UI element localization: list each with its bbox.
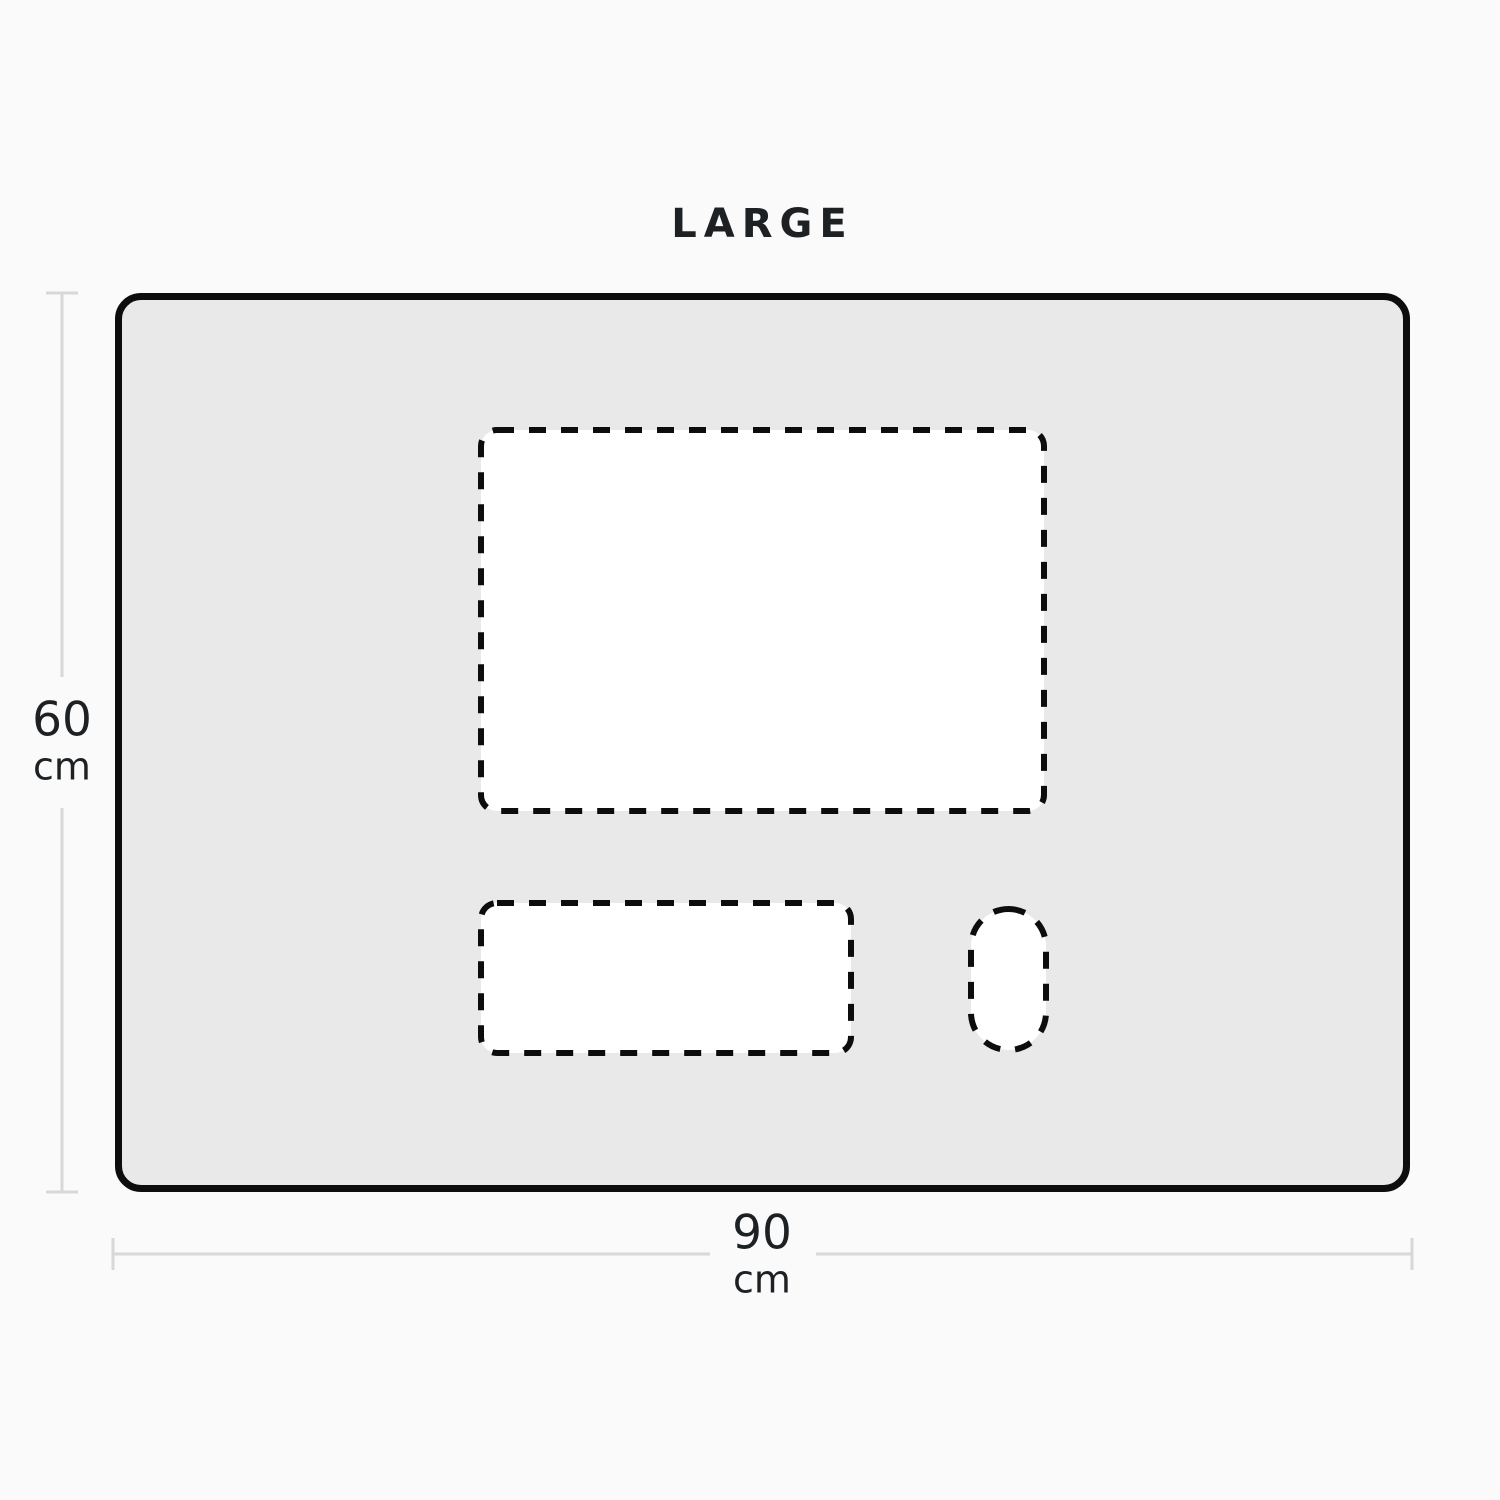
width-dimension-label: 90 cm (732, 1210, 792, 1299)
height-value: 60 (32, 697, 92, 744)
height-dimension-label: 60 cm (32, 697, 92, 786)
mouse-area-outline (971, 909, 1046, 1050)
size-diagram: LARGE 60 cm 90 cm (0, 0, 1500, 1500)
width-unit: cm (733, 1261, 791, 1299)
width-value: 90 (732, 1210, 792, 1257)
monitor-area-outline (481, 430, 1044, 811)
keyboard-area-outline (481, 903, 851, 1053)
height-unit: cm (33, 748, 91, 786)
